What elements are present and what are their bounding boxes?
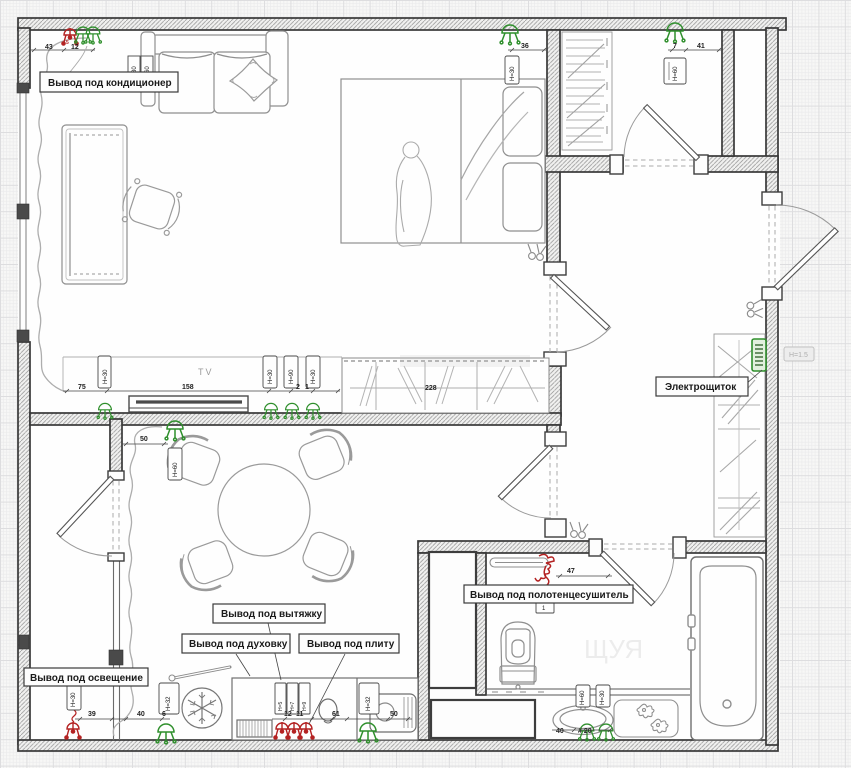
svg-text:50: 50	[140, 436, 148, 443]
svg-text:H=30: H=30	[510, 66, 516, 81]
svg-text:41: 41	[697, 43, 705, 50]
svg-text:TV: TV	[198, 367, 214, 377]
svg-text:H=32: H=32	[366, 696, 372, 711]
svg-text:H=30: H=30	[268, 369, 274, 384]
svg-text:H=1.5: H=1.5	[789, 352, 808, 359]
svg-text:12: 12	[71, 44, 79, 51]
svg-text:Вывод под духовку: Вывод под духовку	[189, 639, 288, 650]
svg-text:2: 2	[296, 384, 300, 391]
svg-text:228: 228	[425, 385, 437, 392]
svg-text:11: 11	[296, 711, 304, 718]
svg-text:H=9: H=9	[302, 701, 308, 711]
svg-text:158: 158	[182, 384, 194, 391]
svg-text:H=5: H=5	[278, 701, 284, 711]
svg-text:Вывод под полотенцесушитель: Вывод под полотенцесушитель	[470, 590, 629, 601]
svg-text:Электрощиток: Электрощиток	[665, 382, 737, 393]
svg-text:7: 7	[673, 43, 677, 50]
svg-text:Вывод под вытяжку: Вывод под вытяжку	[221, 609, 323, 620]
svg-text:50: 50	[390, 711, 398, 718]
svg-text:# 20: # 20	[578, 728, 592, 735]
svg-text:H=32: H=32	[166, 696, 172, 711]
svg-text:43: 43	[45, 44, 53, 51]
svg-text:Вывод под плиту: Вывод под плиту	[307, 639, 395, 650]
svg-text:H=60: H=60	[580, 690, 586, 705]
svg-text:40: 40	[556, 728, 564, 735]
svg-text:39: 39	[88, 711, 96, 718]
svg-text:5: 5	[66, 40, 69, 46]
svg-text:H=7: H=7	[290, 701, 296, 711]
svg-text:Вывод под кондиционер: Вывод под кондиционер	[48, 78, 172, 89]
svg-text:75: 75	[78, 384, 86, 391]
svg-text:H=60: H=60	[173, 462, 179, 477]
svg-text:12: 12	[284, 711, 292, 718]
svg-text:6: 6	[162, 711, 166, 718]
svg-text:H=30: H=30	[311, 369, 317, 384]
svg-text:H=90: H=90	[289, 369, 295, 384]
svg-text:61: 61	[332, 711, 340, 718]
svg-text:1: 1	[305, 384, 309, 391]
svg-text:H=30: H=30	[71, 692, 77, 707]
svg-text:H=30: H=30	[600, 690, 606, 705]
svg-text:H=60: H=60	[673, 66, 679, 81]
svg-text:ЩУЯ: ЩУЯ	[584, 634, 643, 664]
svg-text:36: 36	[521, 43, 529, 50]
svg-text:H=30: H=30	[103, 369, 109, 384]
svg-text:Вывод под освещение: Вывод под освещение	[30, 673, 143, 684]
svg-text:40: 40	[137, 711, 145, 718]
svg-text:47: 47	[567, 568, 575, 575]
